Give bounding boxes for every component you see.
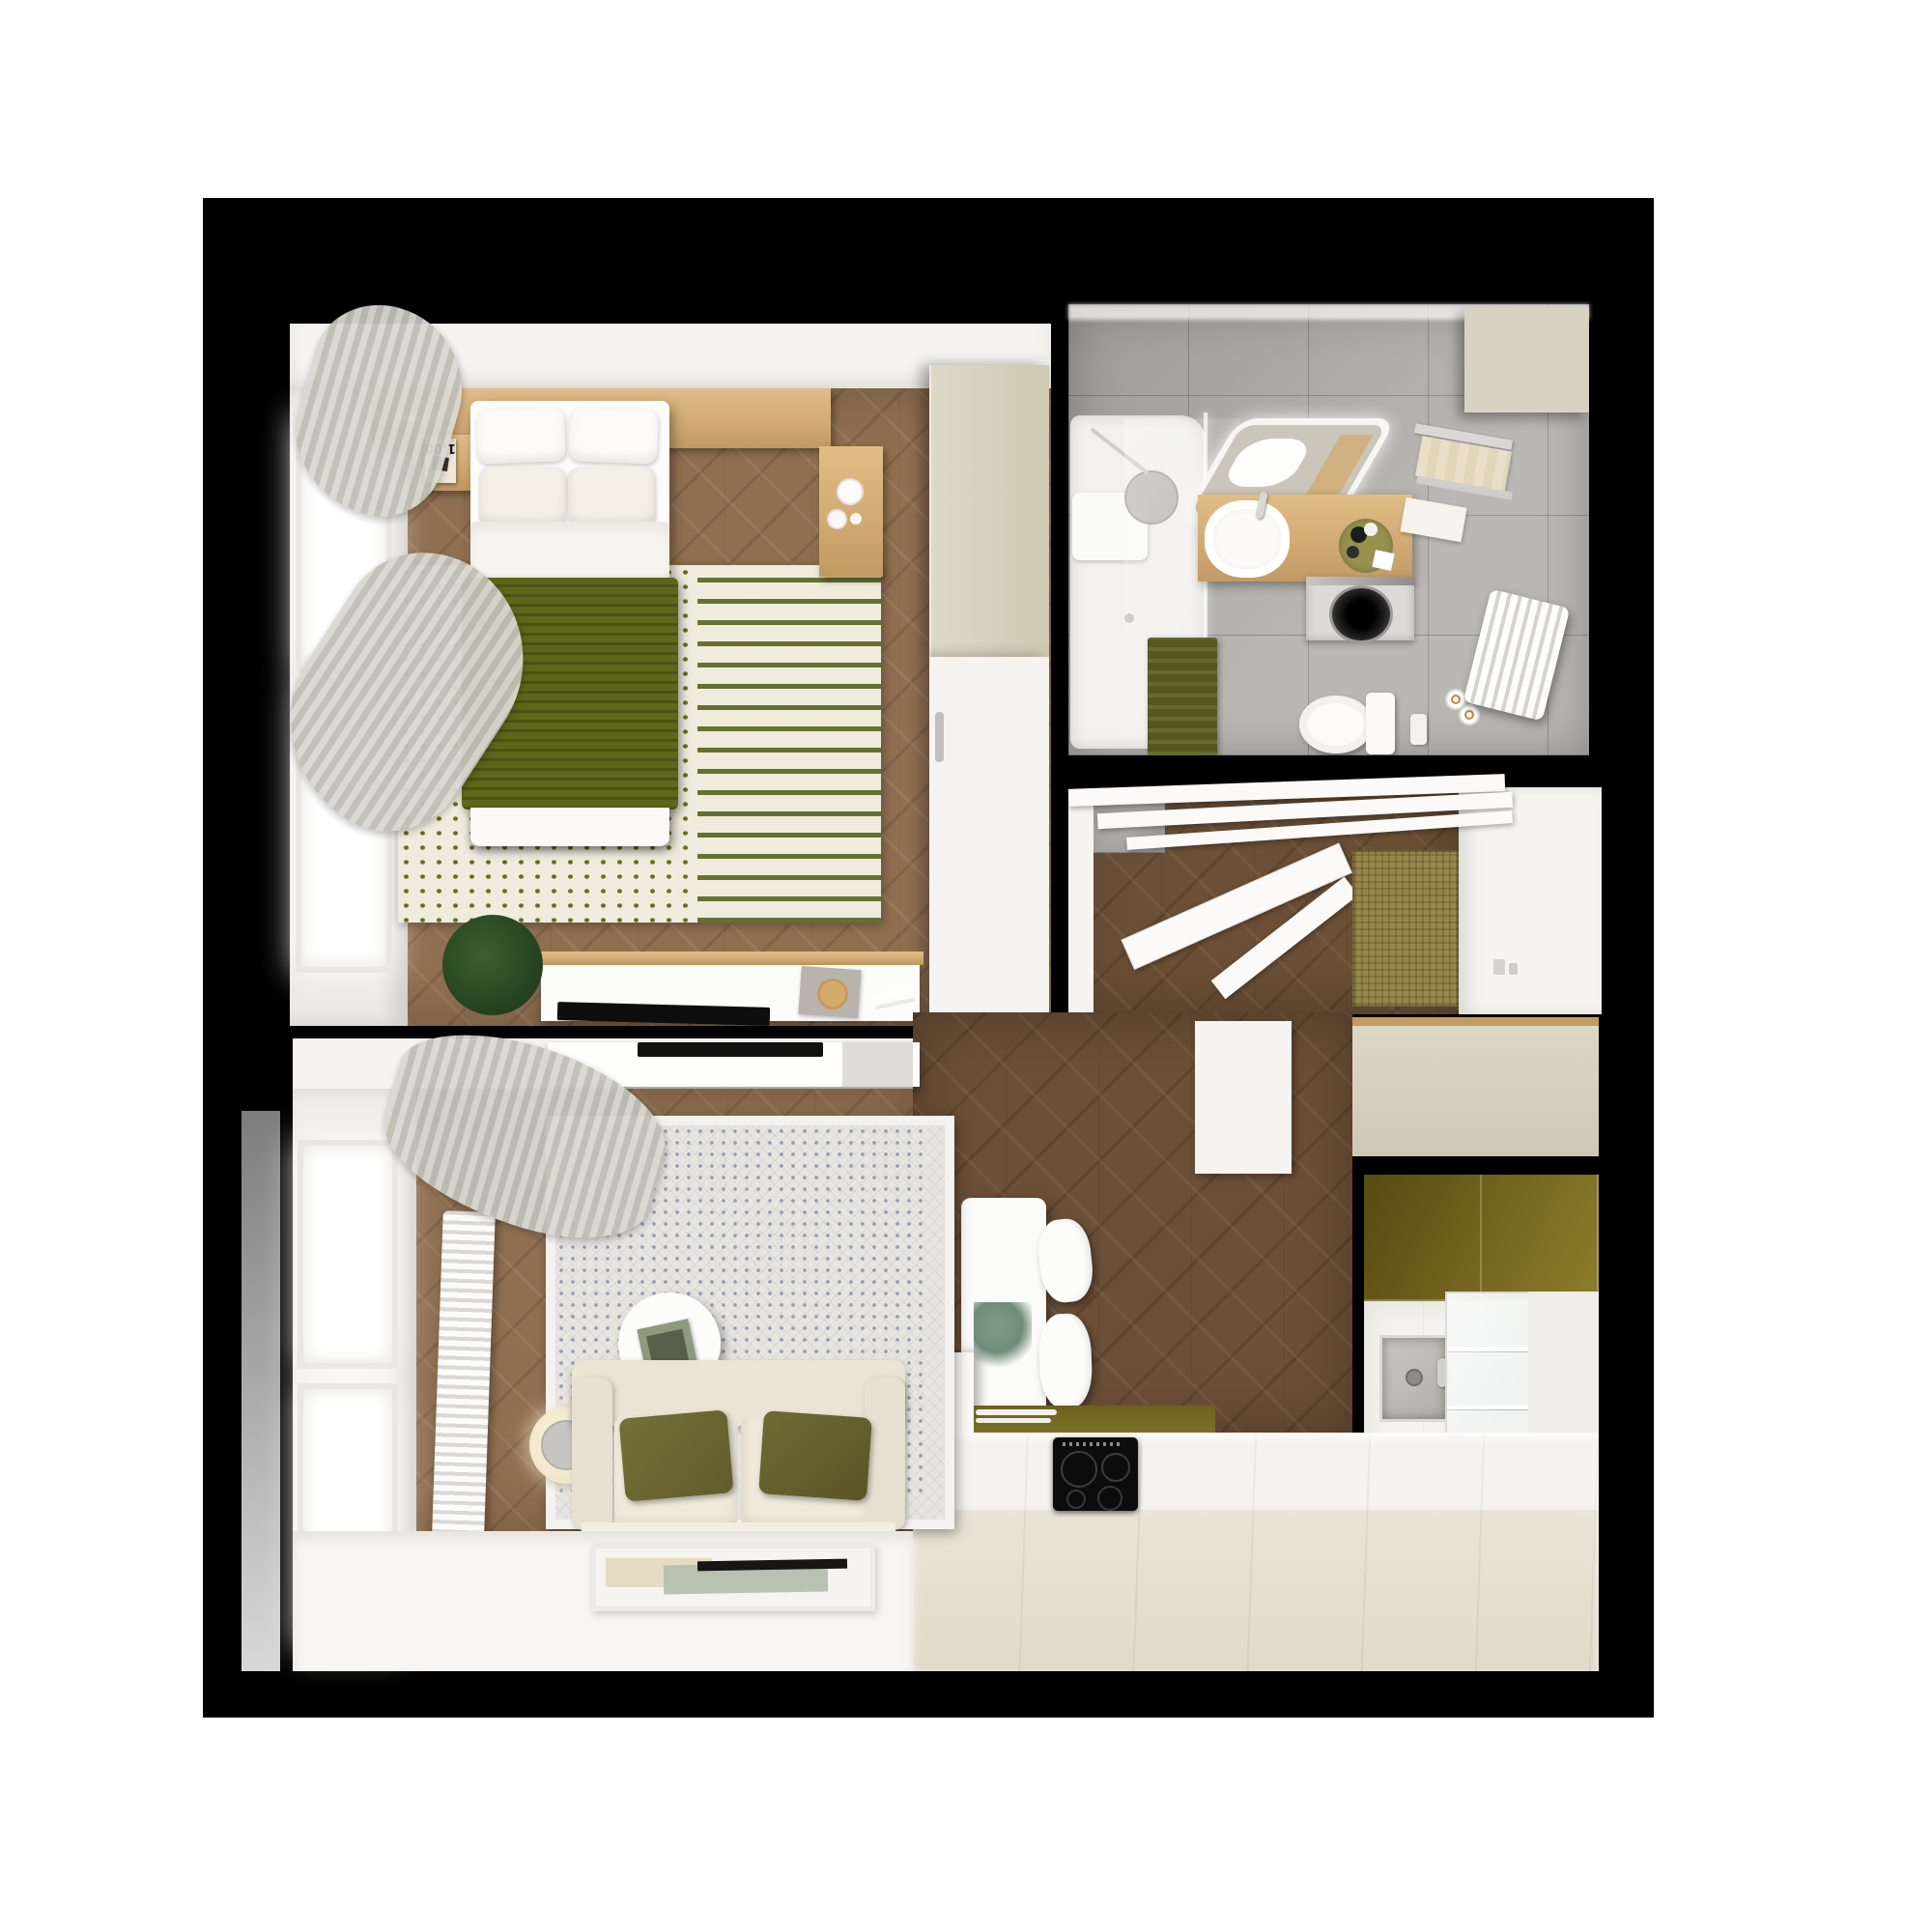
hallway-left-jamb (1068, 789, 1094, 1014)
sofa (572, 1360, 905, 1546)
living-room (293, 1038, 913, 1671)
tall-unit-wood-edge (1352, 1017, 1599, 1026)
sink-drain (1406, 1369, 1423, 1386)
hallway (1068, 770, 1602, 1014)
tv-console-back (537, 952, 923, 965)
olive-base-strip (974, 1406, 1215, 1435)
wood-disc (817, 979, 848, 1009)
toilet-paper-roll-2 (1459, 704, 1480, 725)
table-plant (974, 1302, 1032, 1372)
hob-burner-3 (1066, 1490, 1086, 1509)
flush-plate (1410, 714, 1427, 745)
pillow-top-left (475, 407, 566, 464)
candle-tiny (850, 513, 862, 525)
counter-rail-2 (976, 1418, 1051, 1423)
olive-upper-cabinets (1364, 1175, 1599, 1301)
washer-trim (1306, 577, 1414, 585)
living-cabinet-right (842, 1042, 913, 1087)
pillow-mid-right (567, 466, 655, 527)
bathroom-radiator (1463, 589, 1571, 722)
bathroom (1068, 304, 1589, 755)
closet-handle (935, 712, 944, 762)
candle-small (827, 509, 847, 529)
jute-doormat (1352, 850, 1459, 1007)
induction-hob (1053, 1437, 1138, 1511)
bedroom: 1.00 (290, 324, 1051, 1026)
hob-burner-2 (1101, 1453, 1130, 1482)
wardrobe (929, 365, 1049, 657)
counter-rail-1 (976, 1409, 1057, 1415)
mirror-reflection (1220, 439, 1316, 487)
balcony-edge-bar (241, 1111, 280, 1671)
light-switch-1 (1493, 959, 1505, 975)
living-window-upper (298, 1140, 398, 1369)
tray-bottle-white (1364, 523, 1378, 536)
pillow-top-right (568, 407, 659, 464)
floor-plan-canvas: 1.00 (0, 0, 1932, 1932)
living-wall-tv (638, 1042, 823, 1057)
cabinet-seam (1480, 1175, 1482, 1301)
storage-top (1464, 308, 1589, 412)
sofa-pillow-right (758, 1410, 872, 1501)
kitchen-niche-wall (1195, 1021, 1292, 1174)
closet-door (929, 657, 1049, 1026)
vanity-sink (1205, 500, 1290, 578)
hob-burner-4 (1097, 1486, 1122, 1511)
bed-foot (470, 808, 669, 846)
bedroom-rug-stripes (697, 565, 881, 923)
hob-controls (1063, 1442, 1122, 1446)
floor-art-frame (591, 1544, 875, 1611)
toilet-tank (1366, 693, 1395, 754)
vanity-tissue (1372, 550, 1394, 571)
candle-large (837, 478, 864, 505)
sofa-arm-left (572, 1378, 612, 1530)
toilet-seat (1299, 696, 1373, 753)
kitchen-right-wall (1528, 1292, 1599, 1433)
pillow-mid-left (478, 466, 566, 527)
mirror-reflection-wood (1306, 435, 1374, 495)
tray-bottle-dark (1347, 546, 1359, 558)
plant-foliage (442, 915, 543, 1015)
washing-machine (1306, 577, 1414, 640)
washer-door (1329, 585, 1393, 643)
light-switch-2 (1509, 963, 1518, 975)
sofa-arm-right (865, 1378, 905, 1530)
kitchen-tall-unit-top (1352, 1017, 1599, 1156)
kitchen-counter (913, 1433, 1599, 1671)
dining-chair-2 (1037, 1313, 1093, 1409)
sofa-pillow-left (618, 1409, 733, 1501)
bath-mat (1148, 638, 1217, 755)
hob-burner-1 (1061, 1451, 1097, 1488)
